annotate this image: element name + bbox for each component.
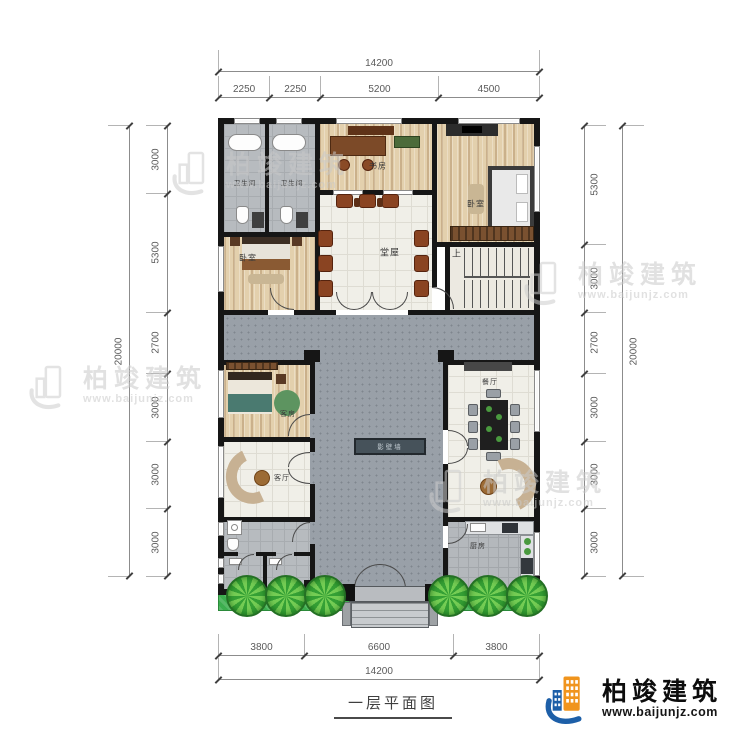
corridor-floor <box>224 315 534 360</box>
bush-plant <box>265 575 307 617</box>
room-label-dining: 餐厅 <box>482 377 498 387</box>
building-plan: 卫生间 卫生间 书房 卧室 卧室 堂屋 上 客房 客厅 餐厅 厨房 影壁墙 <box>218 118 540 595</box>
washer-drum <box>231 524 238 531</box>
dim-right-total: 20000 <box>622 125 644 577</box>
tv <box>462 126 482 133</box>
window <box>336 118 402 124</box>
dim-right-segments: 530030002700300030003000 <box>584 125 606 577</box>
plate <box>496 414 502 420</box>
pillow <box>516 202 528 222</box>
wall <box>432 310 540 315</box>
bed-blanket <box>228 394 272 412</box>
dining-table <box>480 400 508 450</box>
drawing-title: 一层平面图 <box>308 692 478 719</box>
pillow <box>516 174 528 194</box>
room-label-hall: 堂屋 <box>380 246 400 259</box>
wall <box>224 310 268 315</box>
wardrobe <box>226 362 278 370</box>
plate <box>496 436 502 442</box>
plate <box>486 406 492 412</box>
room-label-living: 客厅 <box>274 473 290 483</box>
plant <box>524 548 531 555</box>
window <box>276 118 302 124</box>
hall-chair <box>318 255 333 272</box>
room-label-bedroom-left: 卧室 <box>239 253 257 264</box>
window <box>534 146 540 212</box>
window <box>218 558 224 568</box>
hall-side-table <box>354 198 360 207</box>
watermark-url: www.baijunjz.com <box>83 392 207 406</box>
column <box>438 350 454 362</box>
wall <box>408 310 432 315</box>
round-table <box>480 478 497 495</box>
vanity <box>296 212 308 228</box>
room-label-bath1: 卫生间 <box>234 177 257 187</box>
wall <box>443 360 448 430</box>
stairs-up-label: 上 <box>452 247 462 260</box>
window <box>534 370 540 432</box>
sideboard <box>464 362 512 371</box>
hall-chair <box>382 194 399 208</box>
bush-plant <box>304 575 346 617</box>
plant <box>524 538 531 545</box>
kitchen-sink <box>470 523 486 532</box>
wall <box>432 118 437 287</box>
room-label-bedroom-right: 卧室 <box>467 199 485 210</box>
brand-logo: 柏竣建筑 www.baijunjz.com <box>541 672 722 726</box>
entry-steps <box>351 602 429 628</box>
plant-box <box>394 136 420 148</box>
window <box>234 118 260 124</box>
toilet <box>227 538 239 551</box>
nightstand <box>276 374 286 384</box>
dining-chair <box>468 438 478 450</box>
plate <box>486 426 492 432</box>
brand-url: www.baijunjz.com <box>602 705 722 719</box>
hall-side-table <box>377 198 383 207</box>
stove <box>502 523 518 533</box>
room-label-kitchen: 厨房 <box>470 541 486 551</box>
wall <box>310 360 315 414</box>
toilet <box>236 206 249 224</box>
hall-chair <box>414 255 429 272</box>
hall-chair <box>318 230 333 247</box>
toilet <box>280 206 293 224</box>
watermark-logo-icon <box>168 148 218 198</box>
courtyard-floor <box>310 360 443 589</box>
dim-left-total: 20000 <box>108 125 130 577</box>
desk <box>330 136 386 156</box>
dim-top-total: 14200 <box>218 50 540 72</box>
rug <box>248 274 284 284</box>
stair-treads-lower <box>464 280 530 308</box>
wall <box>224 437 310 442</box>
window <box>218 446 224 498</box>
hall-chair <box>414 280 429 297</box>
nightstand <box>230 237 240 246</box>
dining-chair <box>510 421 520 433</box>
stair-landing-line <box>464 276 530 278</box>
dining-chair <box>468 421 478 433</box>
dim-left-segments: 300053002700300030003000 <box>146 125 168 577</box>
bed-headboard <box>242 237 290 244</box>
wall <box>443 464 448 526</box>
brand-name: 柏竣建筑 <box>602 679 722 705</box>
hall-chair <box>318 280 333 297</box>
wall <box>265 124 269 232</box>
floorplan-sheet: 14200 2250225052004500 380066003800 1420… <box>0 0 750 750</box>
dining-chair <box>468 404 478 416</box>
wall <box>310 484 315 522</box>
window <box>218 522 224 536</box>
wall <box>315 310 336 315</box>
hall-chair <box>359 194 376 208</box>
hall-chair <box>336 194 353 208</box>
dining-chair <box>510 404 520 416</box>
stair-treads-upper <box>464 248 530 276</box>
window <box>218 574 224 584</box>
vanity <box>252 212 264 228</box>
window <box>218 246 224 292</box>
brand-logo-icon <box>541 672 595 726</box>
wardrobe <box>450 226 534 241</box>
bathtub <box>228 134 262 151</box>
dim-top-segments: 2250225052004500 <box>218 76 540 98</box>
watermark-logo-icon <box>25 362 75 412</box>
bush-plant <box>467 575 509 617</box>
room-label-guest: 客房 <box>280 409 296 419</box>
watermark-name: 柏竣建筑 <box>83 367 207 392</box>
round-table <box>254 470 270 486</box>
watermark: 柏竣建筑www.baijunjz.com <box>520 258 702 308</box>
nightstand <box>292 237 302 246</box>
wall <box>310 438 315 452</box>
room-label-bath2: 卫生间 <box>281 177 304 187</box>
wall <box>294 552 310 556</box>
bush-plant <box>226 575 268 617</box>
column <box>304 350 320 362</box>
dim-bottom-segments: 380066003800 <box>218 634 540 656</box>
dining-chair <box>486 389 501 398</box>
bush-plant <box>506 575 548 617</box>
bush-plant <box>428 575 470 617</box>
screen-wall-label: 影壁墙 <box>377 441 403 451</box>
desk-chair <box>338 159 350 171</box>
wall <box>294 310 315 315</box>
dining-chair <box>510 438 520 450</box>
window <box>534 532 540 576</box>
entry-porch <box>349 586 431 602</box>
bed-headboard <box>228 372 272 380</box>
window <box>218 370 224 418</box>
room-label-study: 书房 <box>369 161 387 172</box>
wall <box>224 552 238 556</box>
bathtub <box>272 134 306 151</box>
hall-chair <box>414 230 429 247</box>
bookshelf <box>348 126 394 135</box>
dim-bottom-total: 14200 <box>218 658 540 680</box>
fridge <box>521 558 533 574</box>
